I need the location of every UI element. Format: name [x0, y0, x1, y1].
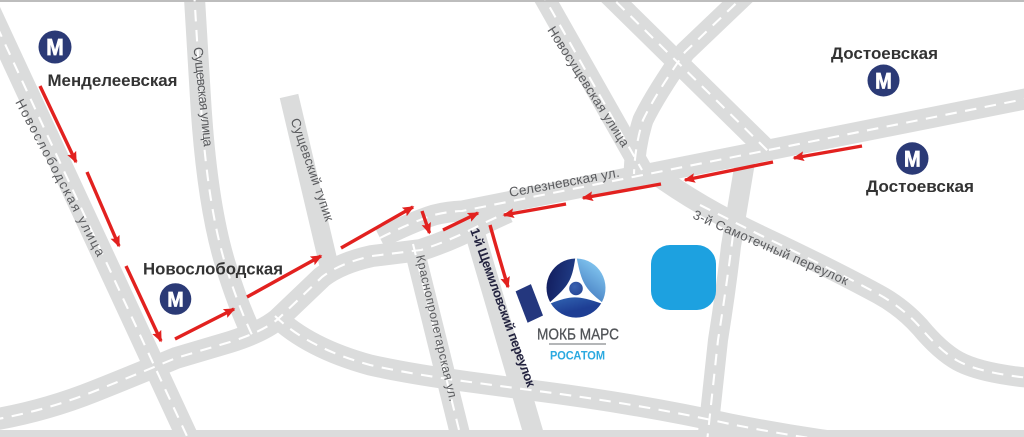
svg-text:М: М: [46, 34, 64, 60]
svg-text:М: М: [875, 68, 892, 93]
svg-text:РОСАТОМ: РОСАТОМ: [550, 349, 605, 363]
svg-text:М: М: [904, 146, 921, 171]
svg-text:Достоевская: Достоевская: [831, 44, 938, 63]
svg-text:МОКБ МАРС: МОКБ МАРС: [537, 327, 619, 344]
svg-text:Достоевская: Достоевская: [866, 177, 974, 196]
svg-text:Новослободская: Новослободская: [143, 260, 283, 279]
svg-text:М: М: [167, 288, 183, 312]
svg-text:Менделеевская: Менделеевская: [48, 71, 178, 90]
